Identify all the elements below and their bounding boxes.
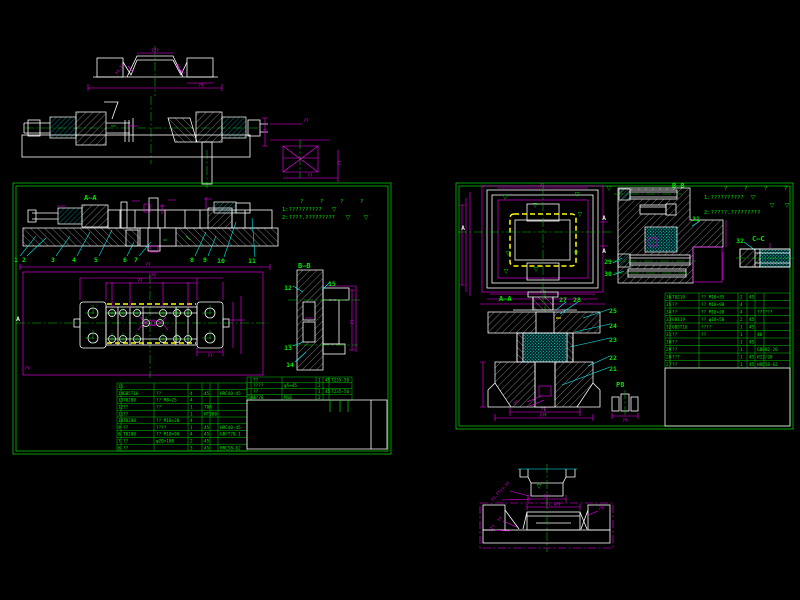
table-cell: 33 <box>666 317 672 323</box>
balloon: 29 <box>604 258 612 266</box>
table-cell: 30 <box>666 340 672 346</box>
table-cell: ?? <box>123 411 129 417</box>
sheet-punch-assembly: ▽ ▽ ▽ ▽ ▽ ▽ ▽ ▽ A A A ?? ?? B—B 31 29 <box>456 182 794 429</box>
surface-finish-icon: ▽ <box>506 250 511 257</box>
dim-text: ?? <box>207 353 213 358</box>
table-cell: 4 <box>190 418 193 424</box>
table-cell: ?? M10×90 <box>156 432 180 438</box>
table-cell: φ5×45 <box>284 383 297 389</box>
table-cell: ???? <box>701 325 712 331</box>
table-cell: ?? <box>672 362 678 368</box>
section-marker: A <box>602 248 606 255</box>
table-cell: HRC58-62 <box>757 362 778 368</box>
table-cell: ?? <box>253 377 259 383</box>
table-cell: ?? <box>123 445 129 451</box>
note-line-1: 1:?????????? <box>704 195 744 201</box>
table-cell: φ20×100 <box>156 439 175 445</box>
table-cell: 1 <box>740 325 743 331</box>
table-cell: 45 <box>749 317 755 323</box>
section-label: A—A <box>84 194 97 202</box>
table-cell: GB/T70.1 <box>220 432 241 438</box>
right-general-notes: ? ? ? ? 1:?????????? ▽ 2:?????.?????????… <box>704 186 790 216</box>
note-line-1: 1:?????????? <box>282 207 322 213</box>
surface-finish-icon: ▽ <box>785 202 790 209</box>
table-cell: T235-50 <box>331 389 350 395</box>
table-cell: ?? M10×28 <box>701 310 725 316</box>
table-cell: 4 <box>740 310 743 316</box>
table-cell: H13/20 <box>757 355 773 361</box>
table-cell: 45 <box>325 377 331 383</box>
table-cell: 1 <box>740 362 743 368</box>
table-cell: ?????? <box>757 310 773 316</box>
surface-finish-icon: ▽ <box>575 191 580 198</box>
left-general-notes: ? ? ? ? 1:?????????? ▽ 2:????.????????? … <box>282 199 369 221</box>
table-cell: 28 <box>666 355 672 361</box>
table-cell: HRC40-45 <box>220 425 241 431</box>
table-cell: 35 <box>666 302 672 308</box>
table-cell: 1 <box>740 340 743 346</box>
balloon: 11 <box>248 257 256 265</box>
table-cell: 45 <box>204 445 210 451</box>
balloon: 10 <box>217 257 225 265</box>
cad-viewport: ??? ??.?? ??.?? ?? ?? ?? ?? ?? A—A <box>0 0 800 600</box>
table-cell: 9 <box>118 425 121 431</box>
table-cell: ?? <box>156 391 162 397</box>
right-section-c-c: C—C 32 <box>736 235 794 267</box>
table-cell: 45 <box>325 389 331 395</box>
table-cell: HT200 <box>204 411 217 417</box>
table-cell: 45 <box>204 391 210 397</box>
section-label: A—A <box>499 295 512 303</box>
balloon: 31 <box>692 215 700 223</box>
table-cell: ?? <box>672 347 678 353</box>
surface-finish-icon: ▽ <box>504 268 509 275</box>
table-cell: 29 <box>666 347 672 353</box>
balloon: 3 <box>51 256 55 264</box>
table-cell: 4 <box>740 302 743 308</box>
surface-finish-icon: ▽ <box>533 202 538 209</box>
balloon: 14 <box>286 361 294 369</box>
table-cell: T8200 <box>123 398 136 404</box>
balloon: 27 <box>559 296 567 304</box>
dim-text: ??? <box>148 273 156 278</box>
bottom-view-punch: ??? ??.?? ??.?? ▽ <box>490 464 577 505</box>
balloon: 24 <box>609 322 617 330</box>
table-cell: ??? <box>672 355 680 361</box>
table-cell: 45 <box>749 295 755 301</box>
cad-canvas: ??? ??.?? ??.?? ?? ?? ?? ?? ?? A—A <box>0 0 800 600</box>
right-parts-table: 36T8210?? M10×3524535???? M10×90434???? … <box>665 293 790 368</box>
dim-text: ?? <box>539 183 545 188</box>
note-mark: ? <box>340 199 343 205</box>
note-mark: ? <box>744 186 747 192</box>
dim-text: ?? <box>539 289 545 294</box>
table-cell: 2 <box>740 295 743 301</box>
balloon: 13 <box>284 344 292 352</box>
left-title-block <box>247 400 387 449</box>
table-cell: ?? <box>672 310 678 316</box>
right-section-a-a: A—A 27 28 25 24 23 22 21 ?? ??? ?? <box>480 290 617 421</box>
table-cell: 1 <box>318 389 321 395</box>
table-cell: ?? M10×90 <box>701 302 725 308</box>
left-parts-table-aux: ??145T235-50????φ5×452??145T235-50280 78… <box>247 377 352 401</box>
left-section-b-b: B—B 12 13 14 15 ?? <box>284 262 360 370</box>
detail-label: P8 <box>616 381 624 389</box>
left-parts-table-main: 1514GB5T16??445HRC40-4513T8200?? M8×2541… <box>117 383 247 451</box>
section-marker: A <box>16 316 20 323</box>
table-cell: T8200 <box>123 432 136 438</box>
table-cell: 4 <box>190 391 193 397</box>
balloon: 30 <box>604 270 612 278</box>
table-cell: ?? <box>123 425 129 431</box>
table-cell: 8 <box>118 432 121 438</box>
surface-finish-icon: ▽ <box>503 194 508 201</box>
balloon: 32 <box>736 237 744 245</box>
table-cell: 2 <box>190 439 193 445</box>
table-cell: 45 <box>204 432 210 438</box>
table-cell: 36 <box>666 295 672 301</box>
balloon: 23 <box>609 336 617 344</box>
surface-finish-icon: ▽ <box>770 202 775 209</box>
left-section-a-a: A—A 1 2 3 4 5 6 7 8 9 10 11 ?? <box>14 194 278 270</box>
dim-text: ??? <box>539 413 547 418</box>
note-line-2: 2:?????.????????? <box>704 210 760 216</box>
table-cell: ?? M10×20 <box>156 418 180 424</box>
dim-text: ?? <box>598 506 604 511</box>
table-cell: 3 <box>190 445 193 451</box>
section-label: C—C <box>752 235 765 243</box>
balloon: 5 <box>94 256 98 264</box>
note-mark: ? <box>300 199 303 205</box>
front-view-upper-die: ??? ??.?? ??.?? ?? <box>88 46 222 96</box>
sheet-die-assembly: A—A 1 2 3 4 5 6 7 8 9 10 11 ?? ? <box>13 183 391 454</box>
note-mark: ? <box>784 186 787 192</box>
table-cell: 2 <box>740 317 743 323</box>
surface-finish-icon: ▽ <box>607 185 612 192</box>
dim-text: ??? <box>488 523 497 532</box>
section-marker: A <box>461 225 465 232</box>
section-label: B—B <box>298 262 311 270</box>
side-view-dim-cluster: ?? ?? ?? ?? <box>262 118 342 182</box>
table-cell: ?? <box>672 302 678 308</box>
surface-finish-icon: ▽ <box>332 206 337 213</box>
note-mark: ? <box>320 199 323 205</box>
balloon: 2 <box>22 256 26 264</box>
table-cell: T235-50 <box>331 377 350 383</box>
balloon: 25 <box>609 307 617 315</box>
surface-finish-icon: ▽ <box>537 483 542 490</box>
left-plan-view: A ?? ??? ?? ?? <box>16 272 268 378</box>
surface-finish-icon: ▽ <box>574 250 579 257</box>
surface-finish-icon: ▽ <box>578 211 583 218</box>
balloon: 12 <box>284 284 292 292</box>
dim-text: ?? <box>137 278 143 283</box>
surface-finish-icon: ▽ <box>364 214 369 221</box>
table-cell: 45 <box>204 425 210 431</box>
table-cell: ?? <box>672 340 678 346</box>
table-cell: ?? <box>701 332 707 338</box>
note-mark: ? <box>360 199 363 205</box>
note-mark: ? <box>724 186 727 192</box>
table-cell: 40 <box>757 332 763 338</box>
dim-text: ?? <box>198 83 204 88</box>
table-cell: 1 <box>190 425 193 431</box>
balloon: 15 <box>328 280 336 288</box>
dim-text: ?? <box>337 160 342 166</box>
side-view-assembly: ?? ?? ?? ?? <box>22 96 342 188</box>
dim-text: ?? <box>540 407 546 412</box>
balloon: 21 <box>609 365 617 373</box>
surface-finish-icon: ▽ <box>751 194 756 201</box>
dim-text: ?? <box>303 118 309 123</box>
table-cell: ?? <box>123 405 129 411</box>
balloon: 1 <box>14 256 18 264</box>
dim-text: ?? <box>496 515 503 522</box>
balloon: 9 <box>203 256 207 264</box>
table-cell: T8A <box>204 405 212 411</box>
balloon: 6 <box>123 256 127 264</box>
surface-finish-icon: ▽ <box>346 214 351 221</box>
table-cell: 1 <box>740 347 743 353</box>
table-cell: 34 <box>666 310 672 316</box>
table-cell: 6 <box>118 445 121 451</box>
table-cell: ???? <box>156 425 167 431</box>
dim-text: ?? <box>145 262 151 267</box>
table-cell: 15 <box>118 384 124 390</box>
dim-text: ?? <box>307 173 313 178</box>
table-cell: ?? M8×25 <box>156 398 177 404</box>
balloon: 7 <box>134 256 138 264</box>
surface-finish-icon: ▽ <box>534 266 539 273</box>
dim-text: ??? <box>151 48 159 53</box>
table-cell: 27 <box>666 362 672 368</box>
dim-text: ?? <box>622 418 628 423</box>
table-cell: 1 <box>190 405 193 411</box>
table-cell: ?? M10×35 <box>701 295 725 301</box>
table-cell: ?? φ10×50 <box>701 317 725 323</box>
note-line-2: 2:????.????????? <box>282 215 335 221</box>
table-cell: 4 <box>190 432 193 438</box>
table-cell: 45 <box>204 439 210 445</box>
table-cell: HRC40-45 <box>220 391 241 397</box>
table-cell: 1 <box>190 411 193 417</box>
table-cell: 31 <box>666 332 672 338</box>
table-cell: ?? <box>672 332 678 338</box>
dim-text: ??.?? <box>499 480 511 493</box>
table-cell: 4 <box>190 398 193 404</box>
dim-text: ?? <box>350 319 355 325</box>
bottom-view-die: ??.??? ?? ??? ?? <box>480 500 613 552</box>
table-cell: GB882-20 <box>757 347 778 353</box>
balloon: 8 <box>190 256 194 264</box>
table-cell: 45 <box>749 340 755 346</box>
table-cell: ?? <box>253 389 259 395</box>
table-cell: 7 <box>118 439 121 445</box>
table-cell: ?? <box>123 439 129 445</box>
table-cell: HRC58-62 <box>220 445 241 451</box>
table-cell: GB119 <box>672 317 685 323</box>
table-cell: 1 <box>740 355 743 361</box>
table-cell: 45 <box>749 355 755 361</box>
table-cell: T8200 <box>123 418 136 424</box>
right-plan-view: ▽ ▽ ▽ ▽ ▽ ▽ ▽ ▽ A A A ?? ?? <box>458 183 612 304</box>
table-cell: 1 <box>740 332 743 338</box>
table-cell: 45 <box>749 362 755 368</box>
balloon: 28 <box>573 296 581 304</box>
table-cell: 32 <box>666 325 672 331</box>
table-cell: T8210 <box>672 295 685 301</box>
dim-text: ??? <box>543 494 551 499</box>
dim-text: ?? <box>24 366 30 371</box>
section-marker: A <box>602 215 606 222</box>
table-cell: ???? <box>253 383 264 389</box>
right-detail-part: P8 ?? <box>612 381 638 423</box>
table-cell: 1 <box>318 377 321 383</box>
dim-text: ??.??? <box>545 502 561 507</box>
table-cell: GB5T16 <box>123 391 139 397</box>
right-title-block <box>665 368 790 426</box>
note-mark: ? <box>764 186 767 192</box>
balloon: 4 <box>72 256 76 264</box>
balloon: 22 <box>609 354 617 362</box>
dim-text: ?? <box>263 128 268 134</box>
table-cell: 2 <box>318 383 321 389</box>
table-cell: GB5T16 <box>672 325 688 331</box>
table-cell: ?? <box>156 405 162 411</box>
table-cell: 45 <box>749 325 755 331</box>
